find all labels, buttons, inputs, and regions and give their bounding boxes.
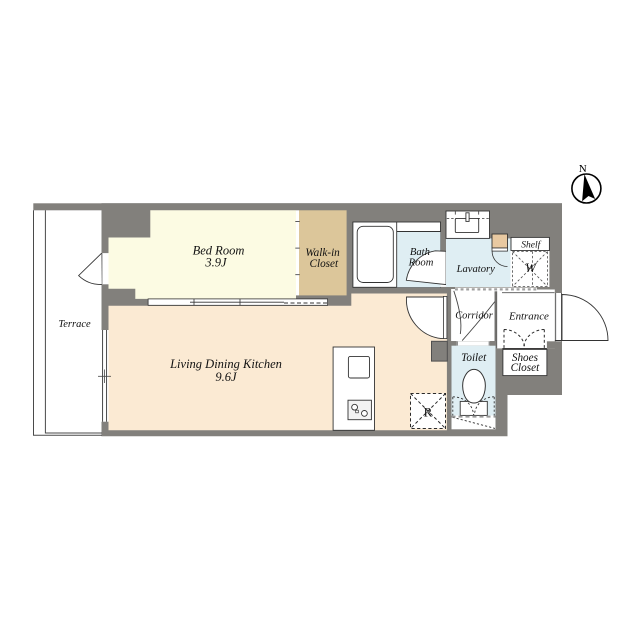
svg-text:9.6J: 9.6J: [215, 370, 238, 384]
svg-text:Lavatory: Lavatory: [456, 264, 496, 275]
svg-text:Entrance: Entrance: [508, 310, 549, 322]
svg-text:N: N: [579, 163, 587, 175]
svg-text:Bath: Bath: [410, 247, 430, 258]
svg-text:W: W: [525, 260, 537, 275]
svg-text:Closet: Closet: [310, 258, 339, 270]
svg-text:R: R: [424, 405, 433, 420]
svg-text:Terrace: Terrace: [58, 319, 91, 330]
svg-text:3.9J: 3.9J: [204, 255, 228, 269]
svg-text:Living Dining Kitchen: Living Dining Kitchen: [169, 357, 282, 371]
svg-text:Toilet: Toilet: [461, 352, 487, 364]
svg-text:Closet: Closet: [511, 362, 540, 374]
svg-text:Room: Room: [408, 258, 434, 269]
svg-text:Shelf: Shelf: [521, 240, 541, 251]
svg-text:Corridor: Corridor: [455, 310, 493, 321]
